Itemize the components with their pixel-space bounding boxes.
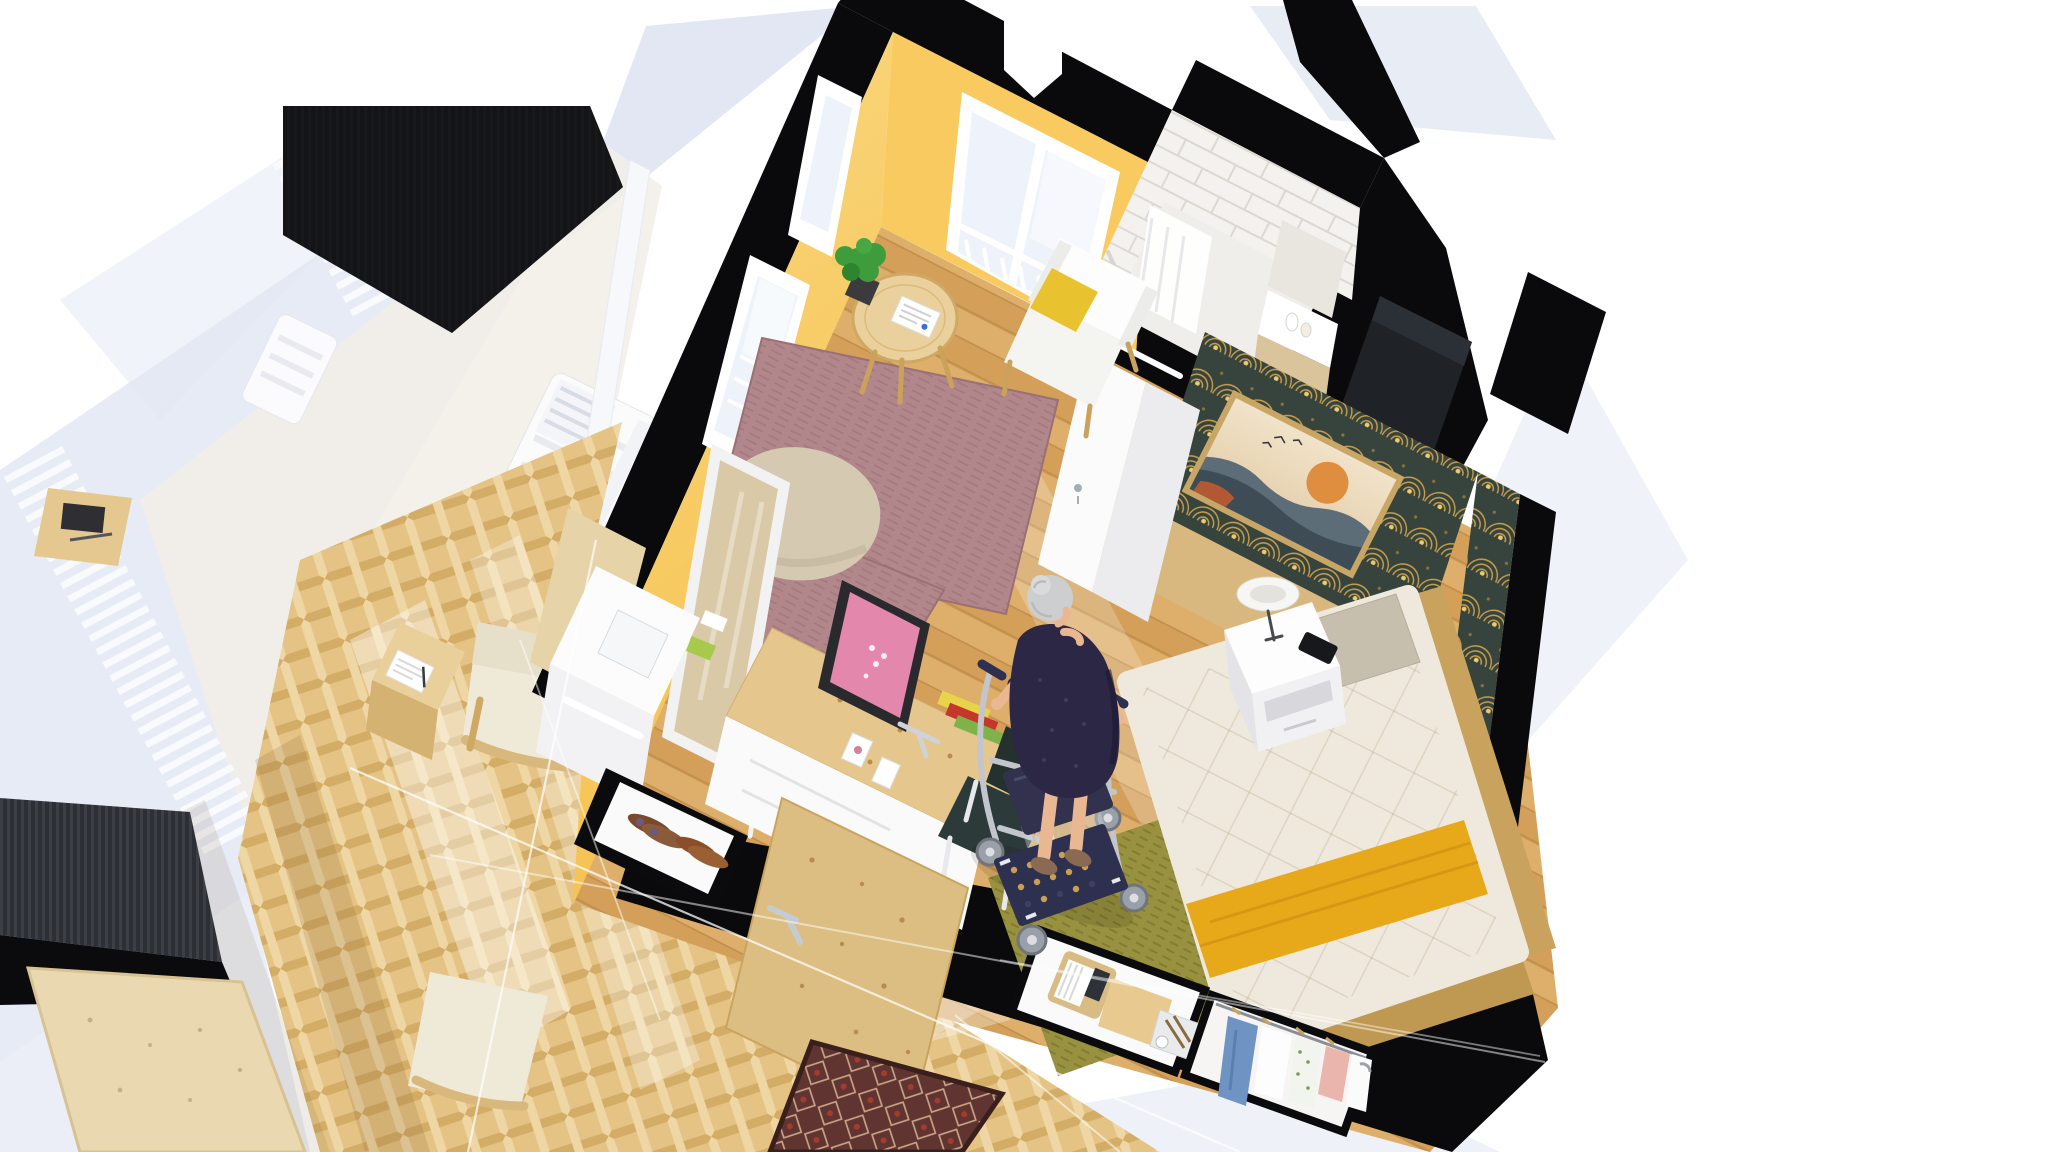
dark-book <box>61 503 105 533</box>
dark-striped-wall <box>0 798 222 962</box>
strap <box>636 818 644 826</box>
lamp-shade-top <box>1250 585 1286 603</box>
scene-canvas <box>0 0 2049 1152</box>
small-side-table <box>34 488 132 566</box>
vase <box>1286 313 1298 331</box>
hand-right <box>991 698 1003 710</box>
tape-roll <box>1156 1036 1168 1048</box>
vase <box>1301 323 1311 337</box>
door-handle <box>1074 484 1082 492</box>
strap <box>650 828 658 836</box>
floorplan-render <box>0 0 2049 1152</box>
leg-right <box>1044 790 1052 856</box>
